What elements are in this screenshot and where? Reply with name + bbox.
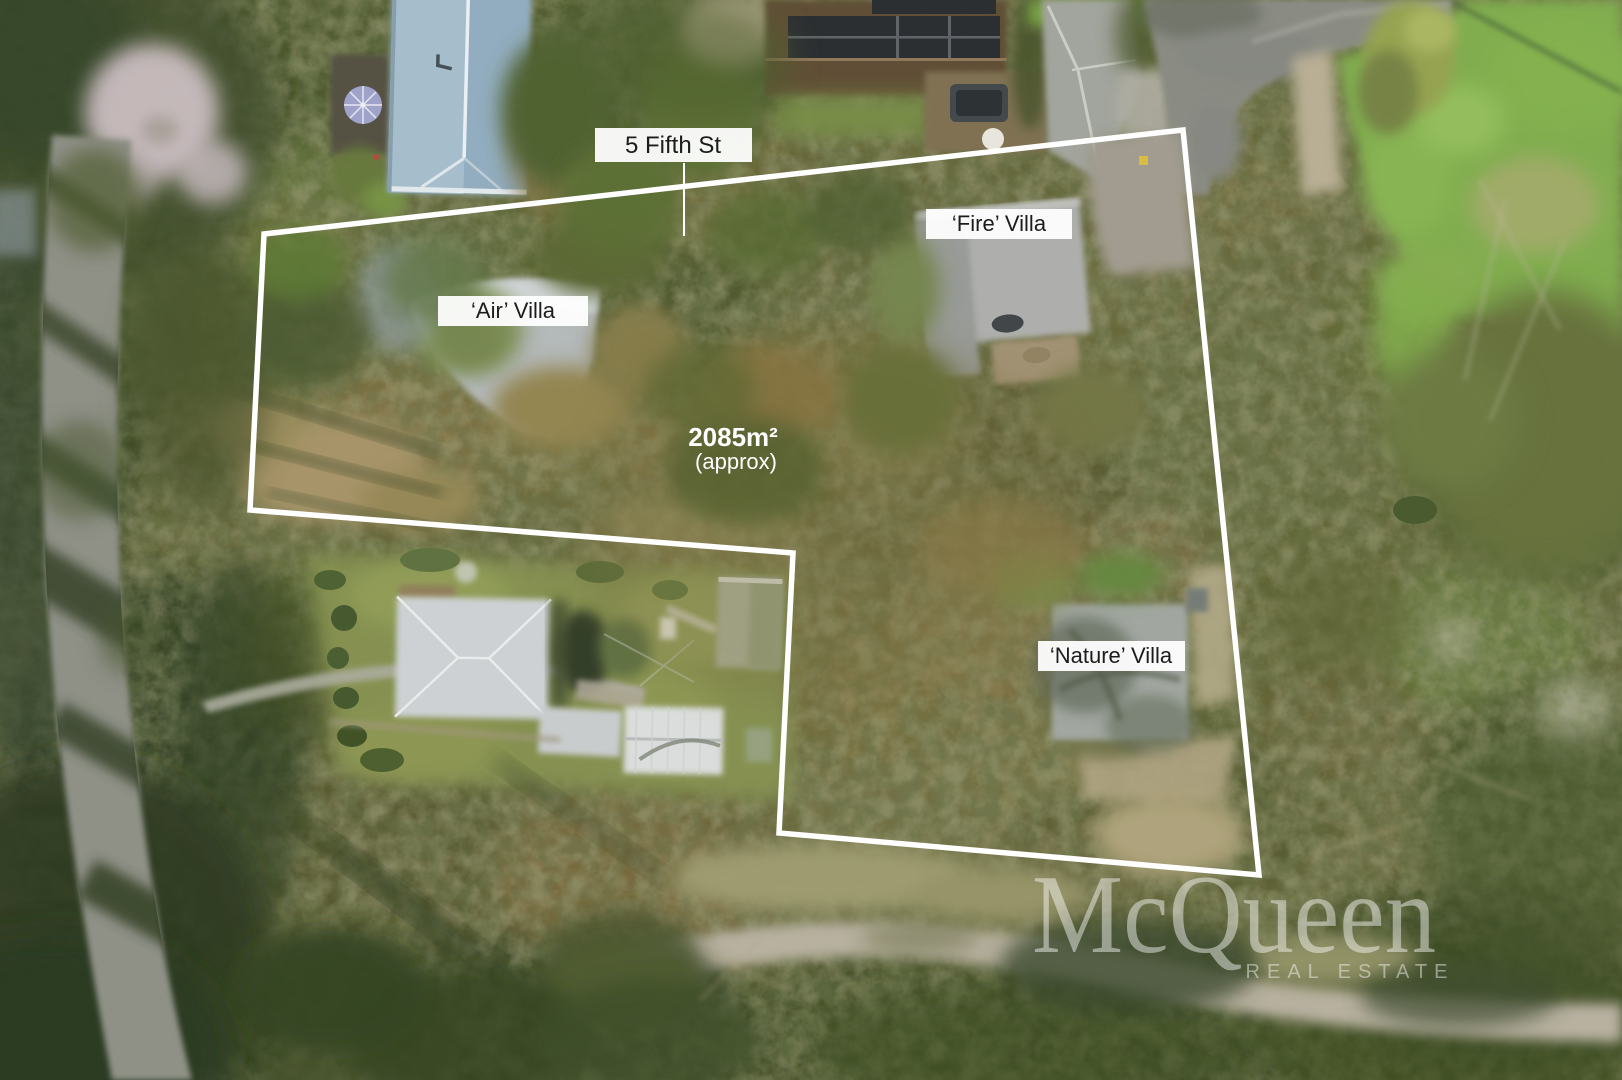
svg-text:‘Nature’ Villa: ‘Nature’ Villa bbox=[1050, 643, 1173, 668]
svg-text:2085m²: 2085m² bbox=[688, 422, 778, 452]
svg-text:McQueen: McQueen bbox=[1032, 853, 1436, 977]
svg-text:5 Fifth St: 5 Fifth St bbox=[625, 132, 721, 159]
svg-text:‘Fire’ Villa: ‘Fire’ Villa bbox=[952, 211, 1047, 236]
svg-text:‘Air’ Villa: ‘Air’ Villa bbox=[471, 298, 556, 323]
svg-text:(approx): (approx) bbox=[695, 449, 777, 474]
svg-text:REAL ESTATE: REAL ESTATE bbox=[1246, 961, 1455, 983]
